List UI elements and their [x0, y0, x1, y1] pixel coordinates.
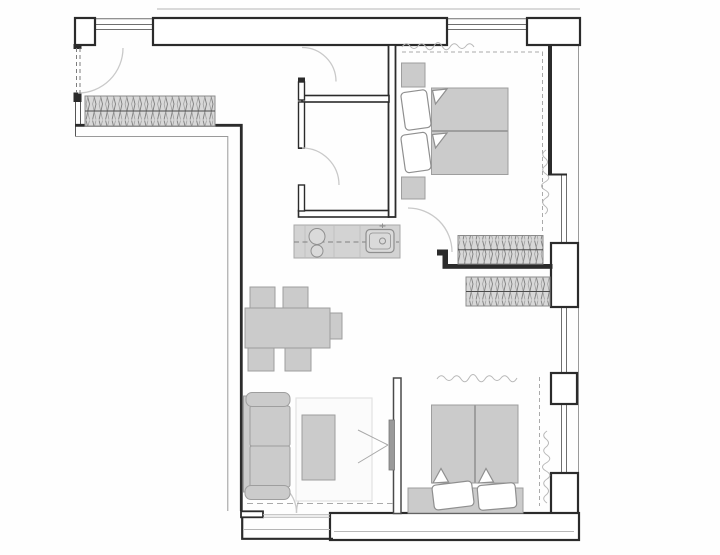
bed2-curtain-squiggle-right [543, 431, 550, 503]
bed2-mattress-right [476, 405, 519, 483]
sofa [244, 393, 291, 500]
wc-door-arc [302, 48, 336, 82]
floor-plan-svg [0, 0, 720, 555]
wall-corner-top-right [527, 18, 580, 45]
radiator-entry [85, 96, 215, 126]
window-top-left [93, 19, 153, 30]
entry-door-arc [78, 48, 123, 93]
nightstand-1 [402, 63, 426, 87]
bedroom1-bottom-wall [443, 264, 553, 269]
wall-jamb-balcony-left [241, 511, 263, 517]
wall-pier-top-left [75, 18, 95, 45]
radiator-living [466, 277, 550, 306]
bedroom1-door-arc [408, 208, 452, 252]
bathroom-wall-middle [302, 96, 389, 103]
cooktop-burner-large [309, 229, 325, 245]
window-right-3 [562, 403, 567, 473]
bathroom-wall-right [389, 45, 396, 217]
wall-bottom-left-outer [242, 518, 333, 539]
window-right-1 [562, 174, 567, 243]
wall-pier-right-2 [551, 373, 577, 404]
dining-set [245, 287, 342, 371]
sofa-cushion-1 [250, 406, 290, 446]
sofa-cushion-2 [250, 446, 290, 487]
wall-top-main [153, 18, 447, 45]
living-room [244, 393, 395, 504]
outer-face-left-step [75, 137, 228, 512]
wall-left-step-inner [75, 125, 241, 511]
dining-table [245, 308, 330, 348]
dining-chair-4 [285, 348, 311, 371]
floor-plan-canvas [0, 0, 720, 555]
entry-door-leaf-dashed [77, 48, 81, 93]
window-right-2 [562, 307, 567, 373]
dining-chair-2 [283, 287, 308, 308]
bedroom1-wall-stub-b [443, 252, 449, 266]
bathroom-door-arc [302, 148, 339, 185]
wall-bottom-band [330, 513, 579, 540]
entry-door-jamb-bottom [74, 93, 82, 103]
bed1-pillow-1 [400, 89, 431, 130]
cooktop-burner-small [311, 245, 323, 257]
bedroom-2 [408, 375, 550, 514]
tv [389, 420, 395, 470]
coffee-table [302, 415, 335, 480]
window-top-right [447, 19, 529, 30]
sofa-armrest-bottom [245, 486, 290, 500]
nightstand-2 [402, 177, 426, 199]
sofa-backrest [244, 396, 251, 492]
wall-pier-right-1 [551, 243, 578, 307]
bedroom-1 [400, 43, 548, 235]
bathroom-wall-bottom [299, 211, 389, 218]
bed2-mattress-left [432, 405, 475, 483]
bathroom-wall-left-low [299, 185, 305, 211]
dining-chair-1 [250, 287, 275, 308]
bed2-pillow-2 [477, 482, 517, 510]
bed2-curtain-squiggle-top [437, 375, 517, 382]
bathroom-wall-left-mid [299, 102, 305, 148]
bed2-pillow-1 [432, 481, 475, 511]
bed1-pillow-2 [400, 132, 431, 173]
radiator-bedroom1 [458, 236, 543, 265]
bathroom-wall-left-stub [299, 82, 305, 100]
kitchen [294, 224, 400, 259]
sofa-armrest-top [246, 393, 290, 407]
dining-chair-3 [248, 348, 274, 371]
